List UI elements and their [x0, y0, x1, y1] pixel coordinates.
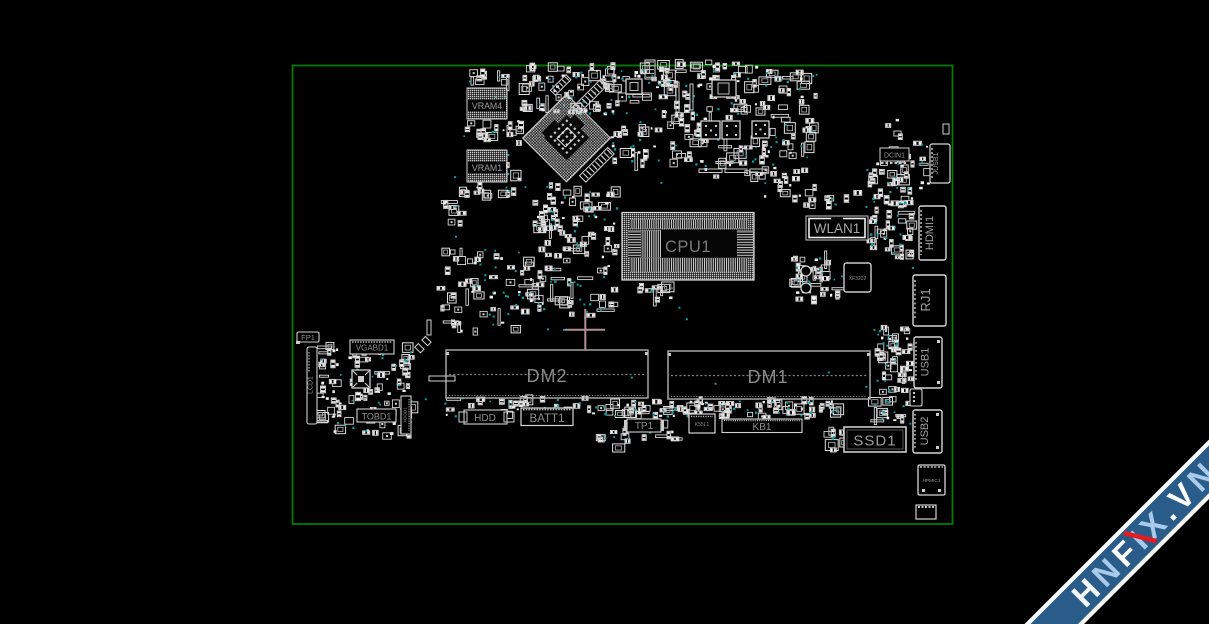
svg-text:DCIN1: DCIN1 — [884, 153, 905, 160]
svg-text:BATT1: BATT1 — [530, 413, 565, 425]
svg-text:FP1: FP1 — [301, 333, 315, 342]
svg-text:USB2: USB2 — [919, 417, 931, 446]
svg-text:HDD: HDD — [474, 413, 496, 424]
svg-text:TOBD1: TOBD1 — [362, 412, 392, 422]
svg-text:USB1: USB1 — [920, 348, 932, 377]
svg-text:HPMIC1: HPMIC1 — [922, 478, 940, 484]
svg-text:SSD1: SSD1 — [853, 433, 896, 450]
svg-text:WLAN1: WLAN1 — [814, 221, 861, 236]
svg-text:RJ1: RJ1 — [918, 288, 933, 311]
svg-text:KB1: KB1 — [753, 422, 772, 433]
svg-text:XDOD1: XDOD1 — [403, 407, 408, 423]
svg-text:VRAM4: VRAM4 — [472, 101, 502, 111]
svg-text:JUSB1: JUSB1 — [933, 153, 940, 175]
svg-text:VGABD1: VGABD1 — [356, 344, 389, 353]
svg-text:VRAM1: VRAM1 — [472, 163, 502, 173]
svg-text:K55L1: K55L1 — [695, 422, 710, 428]
svg-text:DM2: DM2 — [526, 366, 567, 386]
svg-text:XF3202: XF3202 — [849, 276, 867, 282]
svg-text:LCD1: LCD1 — [308, 376, 315, 394]
svg-text:HDMI1: HDMI1 — [924, 216, 936, 250]
svg-text:TP1: TP1 — [635, 421, 654, 432]
svg-text:DM1: DM1 — [747, 367, 788, 387]
svg-text:CPU1: CPU1 — [665, 238, 711, 256]
